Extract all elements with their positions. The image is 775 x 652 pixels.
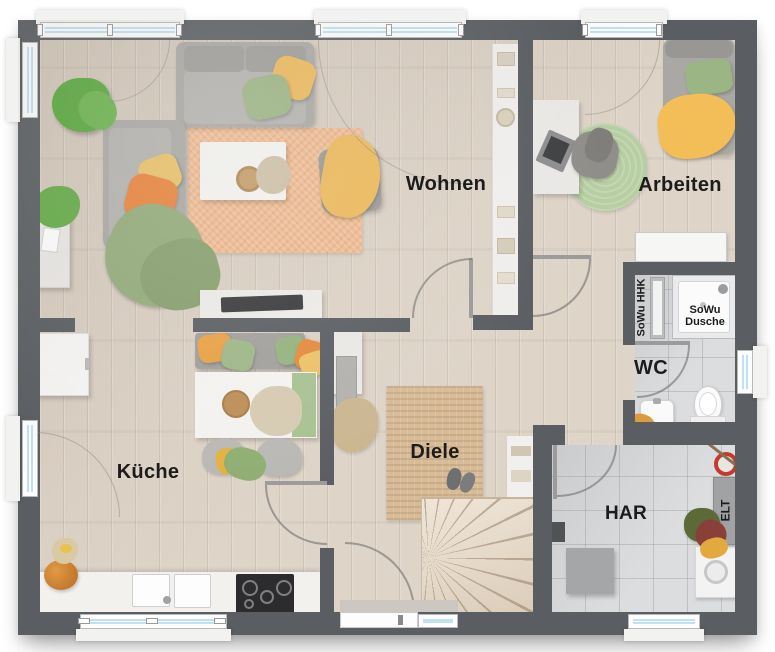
entry-sidelight bbox=[418, 614, 458, 628]
window-mullion bbox=[582, 24, 588, 36]
fridge-handle bbox=[85, 358, 89, 370]
storage-box bbox=[566, 548, 614, 594]
entry-threshold bbox=[340, 600, 458, 612]
room-label-kueche: Küche bbox=[88, 460, 208, 484]
label-shower: SoWu Dusche bbox=[681, 305, 729, 328]
wall-stairs bbox=[533, 425, 552, 612]
room-label-har: HAR bbox=[566, 502, 686, 526]
room-label-wc: WC bbox=[611, 356, 691, 380]
entry-door-handle bbox=[398, 615, 403, 625]
books bbox=[497, 206, 515, 218]
books bbox=[497, 88, 515, 98]
sofa-top-cushion bbox=[184, 46, 244, 72]
wall-har-top-left bbox=[552, 425, 565, 445]
window-sill bbox=[753, 346, 767, 398]
window-mullion bbox=[146, 618, 158, 624]
window bbox=[628, 614, 700, 629]
wall-wohnen-kueche bbox=[193, 318, 410, 332]
books bbox=[497, 52, 515, 66]
window-mullion bbox=[176, 24, 182, 36]
floorplan-canvas: Wohnen Arbeiten Küche Diele WC HAR SoWu … bbox=[0, 0, 775, 652]
wall-har-top-right bbox=[623, 422, 735, 445]
toilet-seat bbox=[699, 392, 717, 416]
window bbox=[22, 420, 38, 497]
room-label-arbeiten: Arbeiten bbox=[620, 173, 740, 197]
window-mullion bbox=[386, 24, 392, 36]
wall-right bbox=[735, 20, 757, 635]
burner bbox=[244, 599, 254, 609]
decor-plant bbox=[256, 156, 290, 194]
window-mullion bbox=[656, 24, 662, 36]
fridge bbox=[33, 333, 89, 396]
burner bbox=[276, 580, 292, 596]
tv bbox=[221, 295, 303, 313]
wall-wohnen-arbeiten bbox=[518, 40, 533, 330]
basket bbox=[496, 108, 515, 127]
window-mullion bbox=[214, 618, 226, 624]
sink-basin bbox=[174, 574, 211, 608]
window-sill bbox=[6, 416, 20, 501]
window-sill bbox=[624, 629, 704, 641]
faucet bbox=[163, 596, 171, 604]
wall-kueche-diele bbox=[320, 330, 334, 485]
window-mullion bbox=[78, 618, 90, 624]
window-mullion bbox=[37, 24, 43, 36]
burner bbox=[242, 580, 258, 596]
burner bbox=[260, 590, 274, 604]
bed-headboard bbox=[665, 40, 733, 58]
console-books bbox=[511, 470, 531, 482]
window bbox=[737, 350, 753, 394]
wall-kueche-diele-stub bbox=[320, 548, 334, 612]
note-sign bbox=[40, 227, 60, 253]
washing-machine-door bbox=[704, 560, 728, 584]
window bbox=[585, 22, 663, 38]
entry-door-leaf bbox=[340, 612, 418, 628]
staircase bbox=[421, 497, 533, 612]
books bbox=[497, 272, 515, 284]
fruit-bowl bbox=[44, 560, 78, 590]
room-label-wohnen: Wohnen bbox=[386, 172, 506, 196]
bed-pillow-green bbox=[684, 57, 734, 97]
window-sill bbox=[76, 629, 231, 641]
dried-flowers bbox=[250, 386, 302, 436]
basin-faucet bbox=[653, 398, 661, 404]
window-mullion bbox=[458, 24, 464, 36]
shower-head-icon bbox=[718, 284, 728, 294]
window bbox=[22, 42, 38, 118]
books bbox=[497, 238, 515, 254]
centerpiece-bowl bbox=[222, 390, 250, 418]
towel-radiator-bar bbox=[653, 281, 662, 335]
window-sill bbox=[6, 38, 20, 122]
wall-stub-center bbox=[473, 315, 533, 330]
radiator bbox=[635, 232, 727, 262]
console-books bbox=[511, 446, 531, 456]
label-heater-hhk: SoWu HHK bbox=[637, 273, 650, 343]
room-label-diele: Diele bbox=[375, 440, 495, 464]
window-mullion bbox=[107, 24, 113, 36]
flower-yellow bbox=[60, 544, 72, 553]
window-mullion bbox=[315, 24, 321, 36]
floorplan: Wohnen Arbeiten Küche Diele WC HAR SoWu … bbox=[0, 0, 775, 652]
label-elt: ELT bbox=[721, 491, 734, 531]
